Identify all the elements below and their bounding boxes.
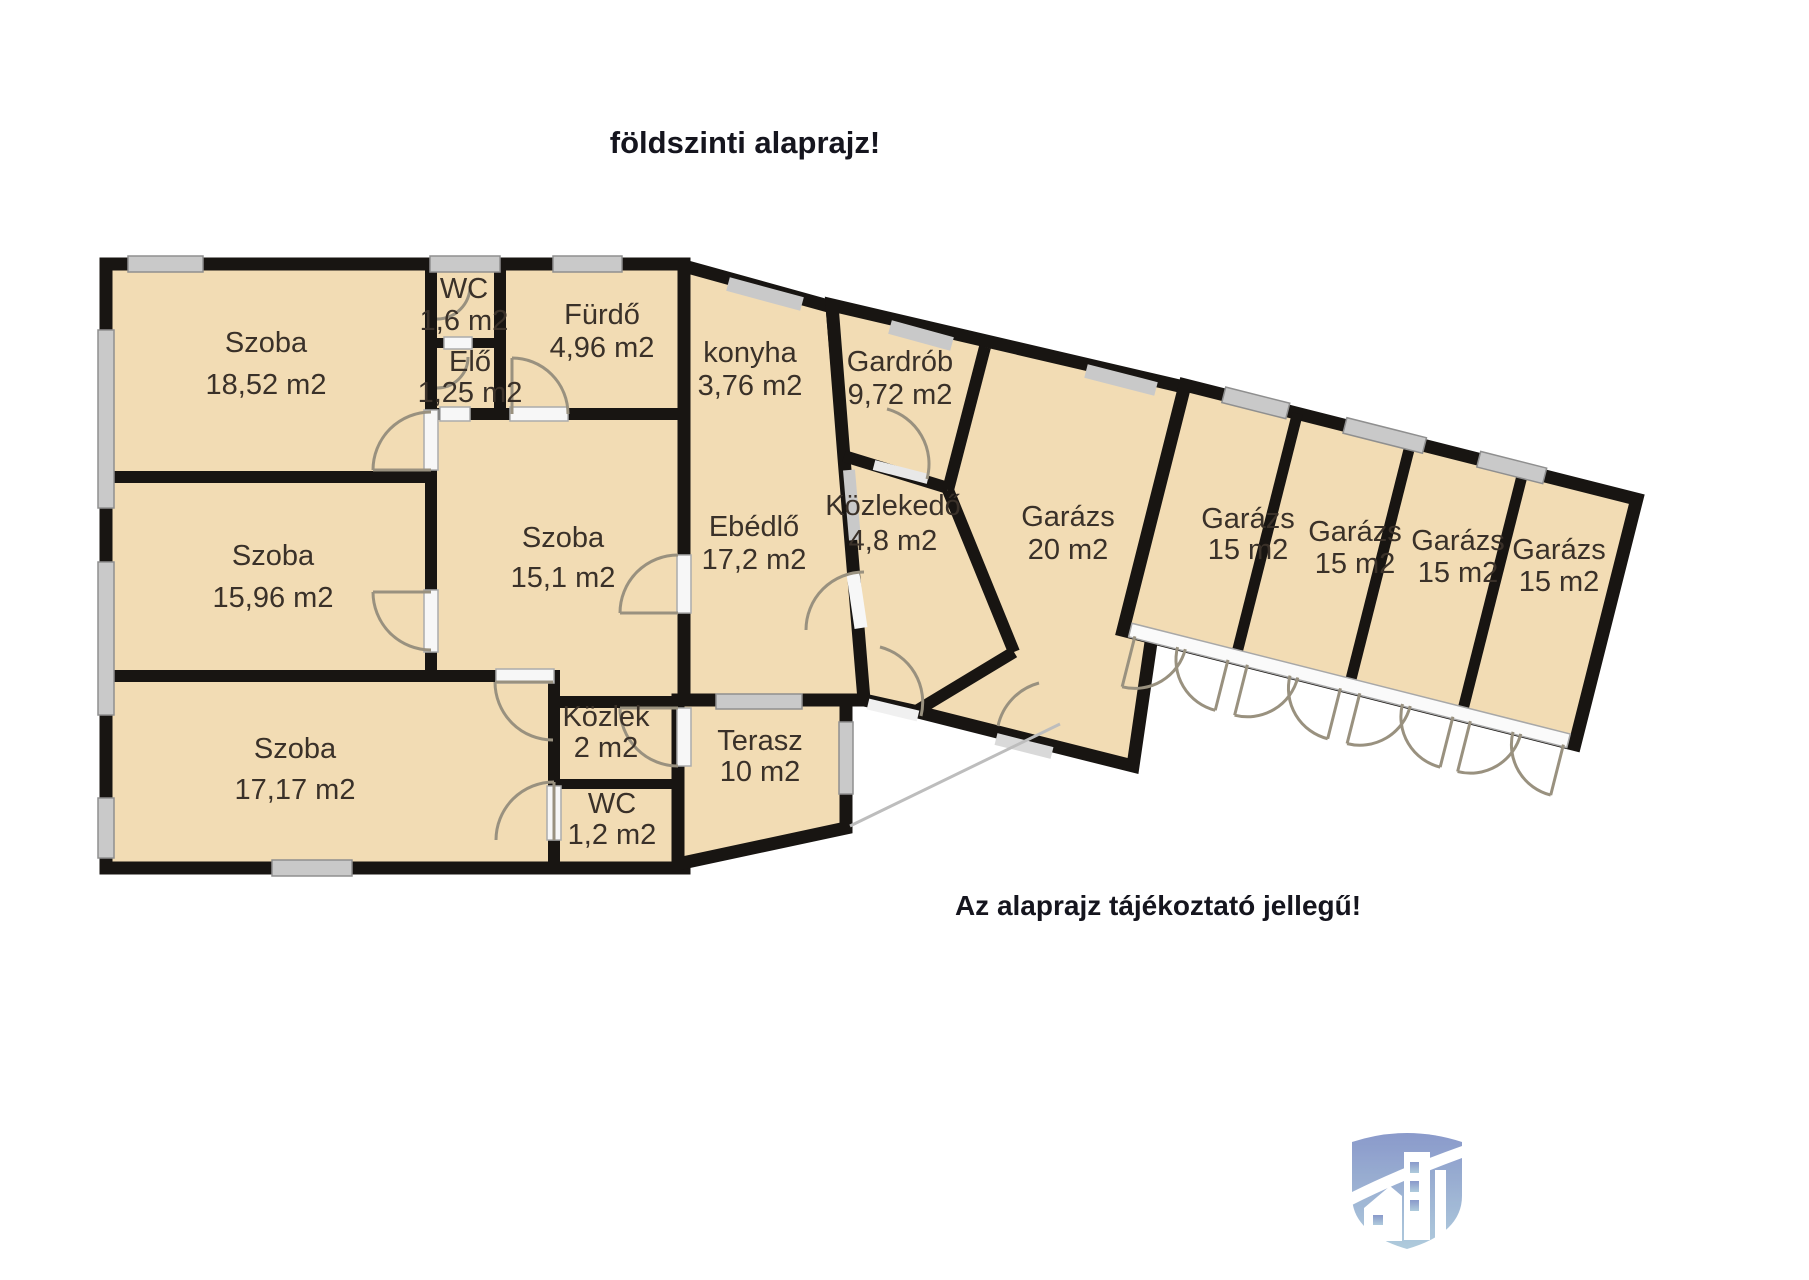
room-area-szoba-2: 15,96 m2 bbox=[213, 582, 334, 614]
room-label-furdo: Fürdő4,96 m2 bbox=[550, 299, 655, 364]
room-area-garazs-20: 20 m2 bbox=[1028, 534, 1109, 566]
room-label-garazs-15a: Garázs15 m2 bbox=[1201, 503, 1294, 566]
room-label-kozlek: Közlek2 m2 bbox=[562, 701, 650, 764]
room-name-furdo: Fürdő bbox=[564, 299, 640, 331]
room-name-szoba-3: Szoba bbox=[522, 522, 605, 554]
room-name-wc-2: WC bbox=[588, 788, 636, 820]
room-name-elo: Elő bbox=[449, 346, 491, 378]
room-label-konyha: konyha3,76 m2 bbox=[698, 337, 803, 402]
room-name-szoba-2: Szoba bbox=[232, 540, 315, 572]
room-label-terasz: Terasz10 m2 bbox=[717, 725, 802, 788]
room-area-garazs-15b: 15 m2 bbox=[1315, 548, 1396, 580]
room-area-kozlekedo: 4,8 m2 bbox=[849, 525, 938, 557]
room-area-szoba-3: 15,1 m2 bbox=[511, 562, 616, 594]
room-name-garazs-20: Garázs bbox=[1021, 501, 1114, 533]
room-name-garazs-15c: Garázs bbox=[1411, 525, 1504, 557]
room-area-garazs-15d: 15 m2 bbox=[1519, 566, 1600, 598]
room-area-garazs-15a: 15 m2 bbox=[1208, 534, 1289, 566]
room-area-gardrob: 9,72 m2 bbox=[848, 379, 953, 411]
exterior-step-line bbox=[850, 724, 1060, 826]
room-label-garazs-15b: Garázs15 m2 bbox=[1308, 516, 1401, 580]
room-label-ebedlo: Ebédlő17,2 m2 bbox=[702, 511, 807, 576]
room-name-kozlek: Közlek bbox=[562, 701, 650, 733]
room-area-wc-1: 1,6 m2 bbox=[420, 305, 509, 337]
room-area-kozlek: 2 m2 bbox=[574, 732, 638, 764]
room-name-szoba-4: Szoba bbox=[254, 733, 337, 765]
room-label-garazs-15d: Garázs15 m2 bbox=[1512, 534, 1605, 598]
floor-plan-page: földszinti alaprajz! Az alaprajz tájékoz… bbox=[0, 0, 1809, 1280]
room-label-garazs-20: Garázs20 m2 bbox=[1021, 501, 1114, 566]
room-area-szoba-1: 18,52 m2 bbox=[206, 369, 327, 401]
room-name-kozlekedo: Közlekedő bbox=[825, 490, 960, 522]
room-area-terasz: 10 m2 bbox=[720, 756, 801, 788]
room-name-gardrob: Gardrób bbox=[847, 346, 953, 378]
room-area-garazs-15c: 15 m2 bbox=[1418, 557, 1499, 589]
room-name-garazs-15d: Garázs bbox=[1512, 534, 1605, 566]
room-area-wc-2: 1,2 m2 bbox=[568, 819, 657, 851]
room-name-garazs-15b: Garázs bbox=[1308, 516, 1401, 548]
room-name-szoba-1: Szoba bbox=[225, 327, 308, 359]
room-name-garazs-15a: Garázs bbox=[1201, 503, 1294, 535]
room-area-konyha: 3,76 m2 bbox=[698, 370, 803, 402]
agency-logo bbox=[1352, 1133, 1462, 1249]
room-area-furdo: 4,96 m2 bbox=[550, 332, 655, 364]
room-area-ebedlo: 17,2 m2 bbox=[702, 544, 807, 576]
floor-plan-drawing: Szoba18,52 m2WC1,6 m2Elő1,25 m2Fürdő4,96… bbox=[0, 0, 1809, 1280]
room-area-elo: 1,25 m2 bbox=[418, 377, 523, 409]
room-name-terasz: Terasz bbox=[717, 725, 802, 757]
room-label-gardrob: Gardrób9,72 m2 bbox=[847, 346, 953, 411]
room-label-garazs-15c: Garázs15 m2 bbox=[1411, 525, 1504, 589]
room-name-konyha: konyha bbox=[703, 337, 797, 369]
room-area-szoba-4: 17,17 m2 bbox=[235, 774, 356, 806]
room-name-wc-1: WC bbox=[440, 273, 488, 305]
room-name-ebedlo: Ebédlő bbox=[709, 511, 799, 543]
